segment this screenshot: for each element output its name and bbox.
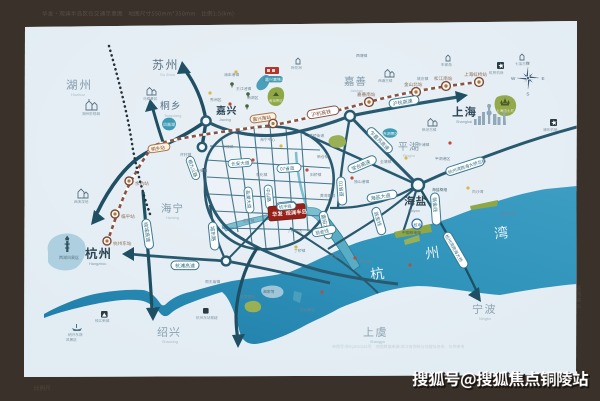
svg-text:W: W: [511, 76, 516, 81]
svg-text:S: S: [526, 92, 529, 97]
svg-text:Shangyu: Shangyu: [370, 340, 385, 344]
svg-text:Su Zhou: Su Zhou: [160, 72, 175, 77]
svg-text:Shaoxing: Shaoxing: [162, 340, 178, 344]
svg-text:Haining: Haining: [166, 216, 179, 220]
svg-text:E: E: [542, 76, 545, 81]
svg-text:Jiashan: Jiashan: [350, 89, 363, 93]
svg-text:Tongxiang: Tongxiang: [164, 114, 181, 118]
svg-text:Hangzhou: Hangzhou: [89, 262, 106, 266]
svg-text:Shanghai: Shanghai: [456, 120, 472, 124]
svg-text:Haiyan: Haiyan: [408, 209, 420, 213]
svg-text:Ningbo: Ningbo: [479, 317, 491, 321]
svg-text:Jiaxing: Jiaxing: [219, 118, 231, 122]
svg-text:Huzhou: Huzhou: [71, 92, 85, 97]
